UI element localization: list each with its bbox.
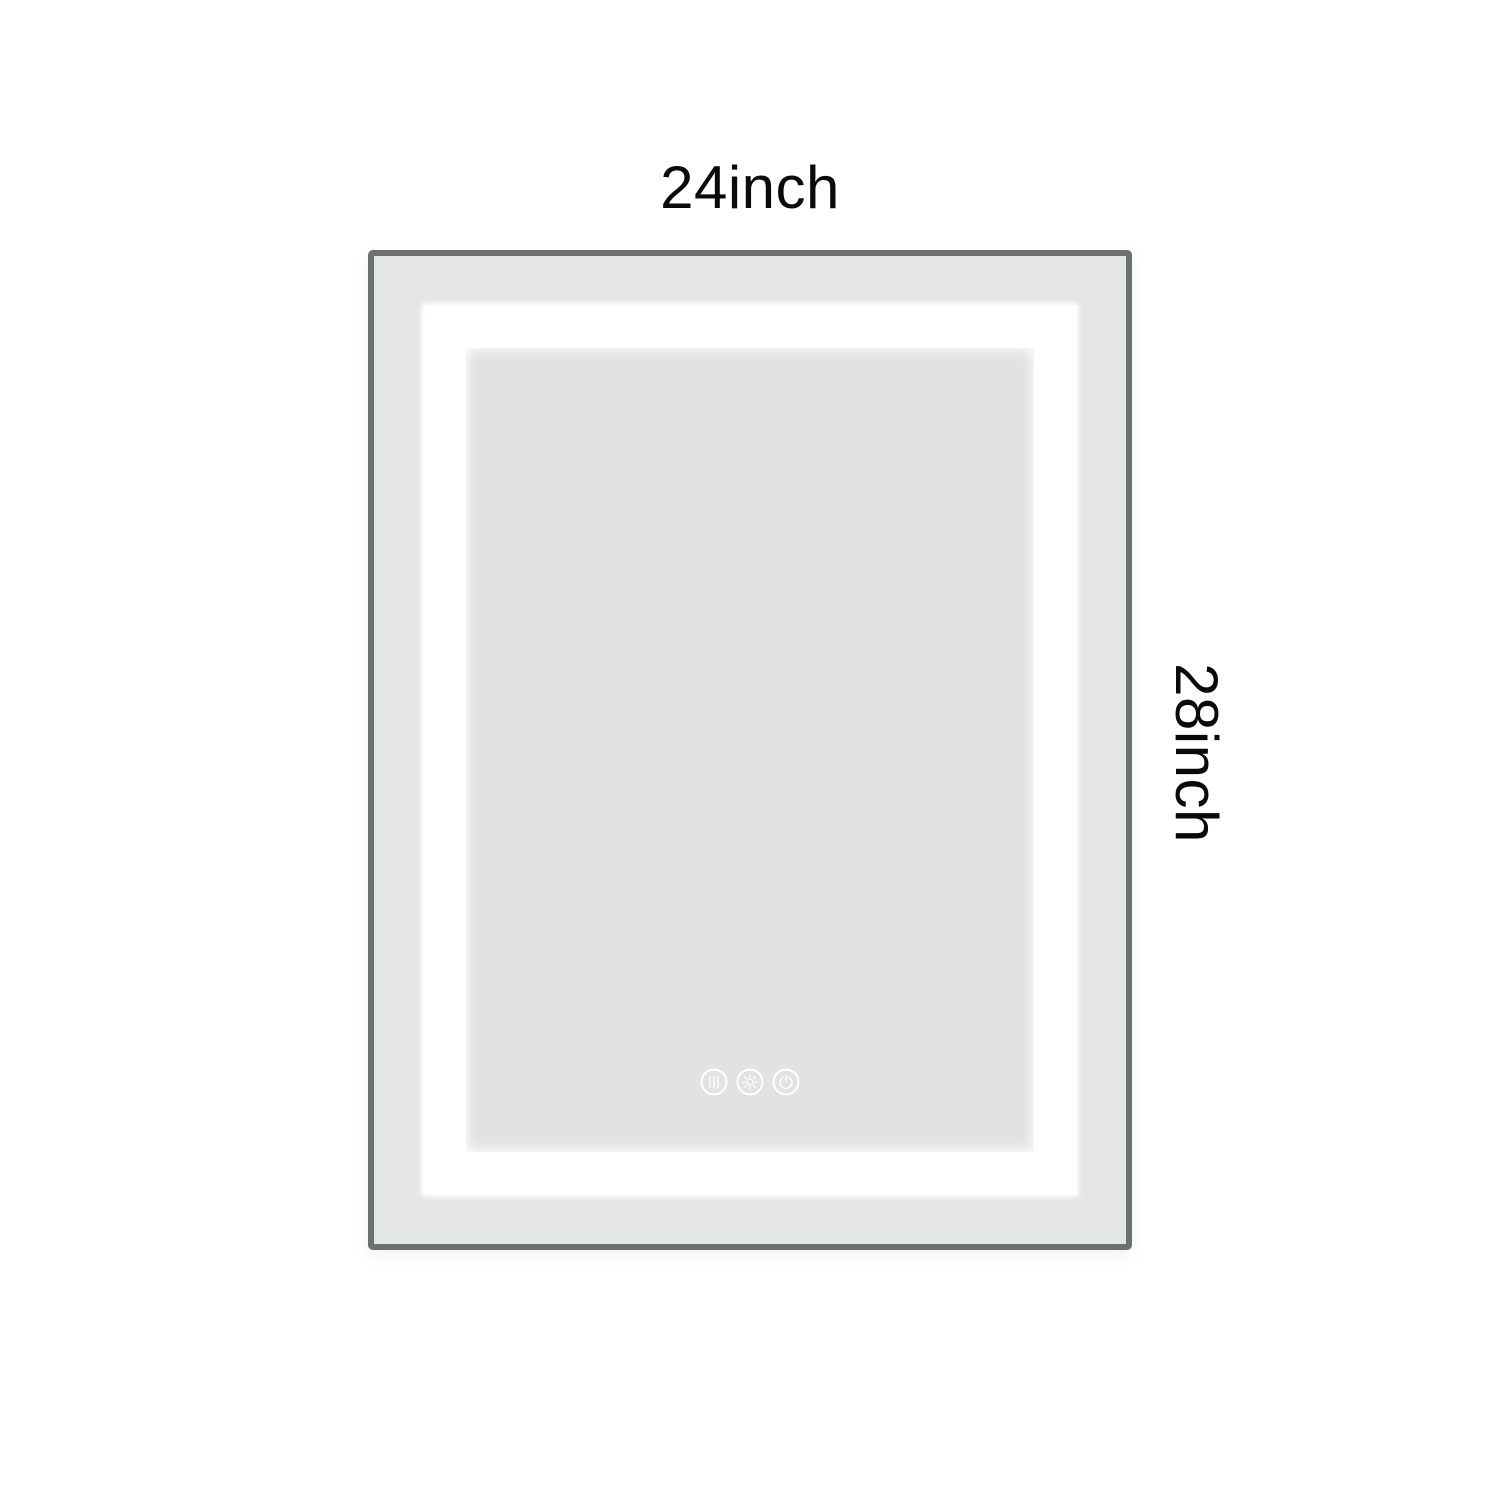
mirror-frame [368, 250, 1132, 1250]
anti-fog-button [700, 1068, 728, 1096]
touch-controls [700, 1068, 800, 1096]
brightness-button [736, 1068, 764, 1096]
power-icon [772, 1068, 800, 1096]
product-dimension-diagram: 24inch 28inch [0, 0, 1500, 1500]
power-button [772, 1068, 800, 1096]
brightness-icon [736, 1068, 764, 1096]
anti-fog-icon [700, 1068, 728, 1096]
mirror-inner-panel [466, 348, 1034, 1152]
height-dimension-label: 28inch [1166, 663, 1226, 843]
width-dimension-label: 24inch [368, 158, 1132, 218]
